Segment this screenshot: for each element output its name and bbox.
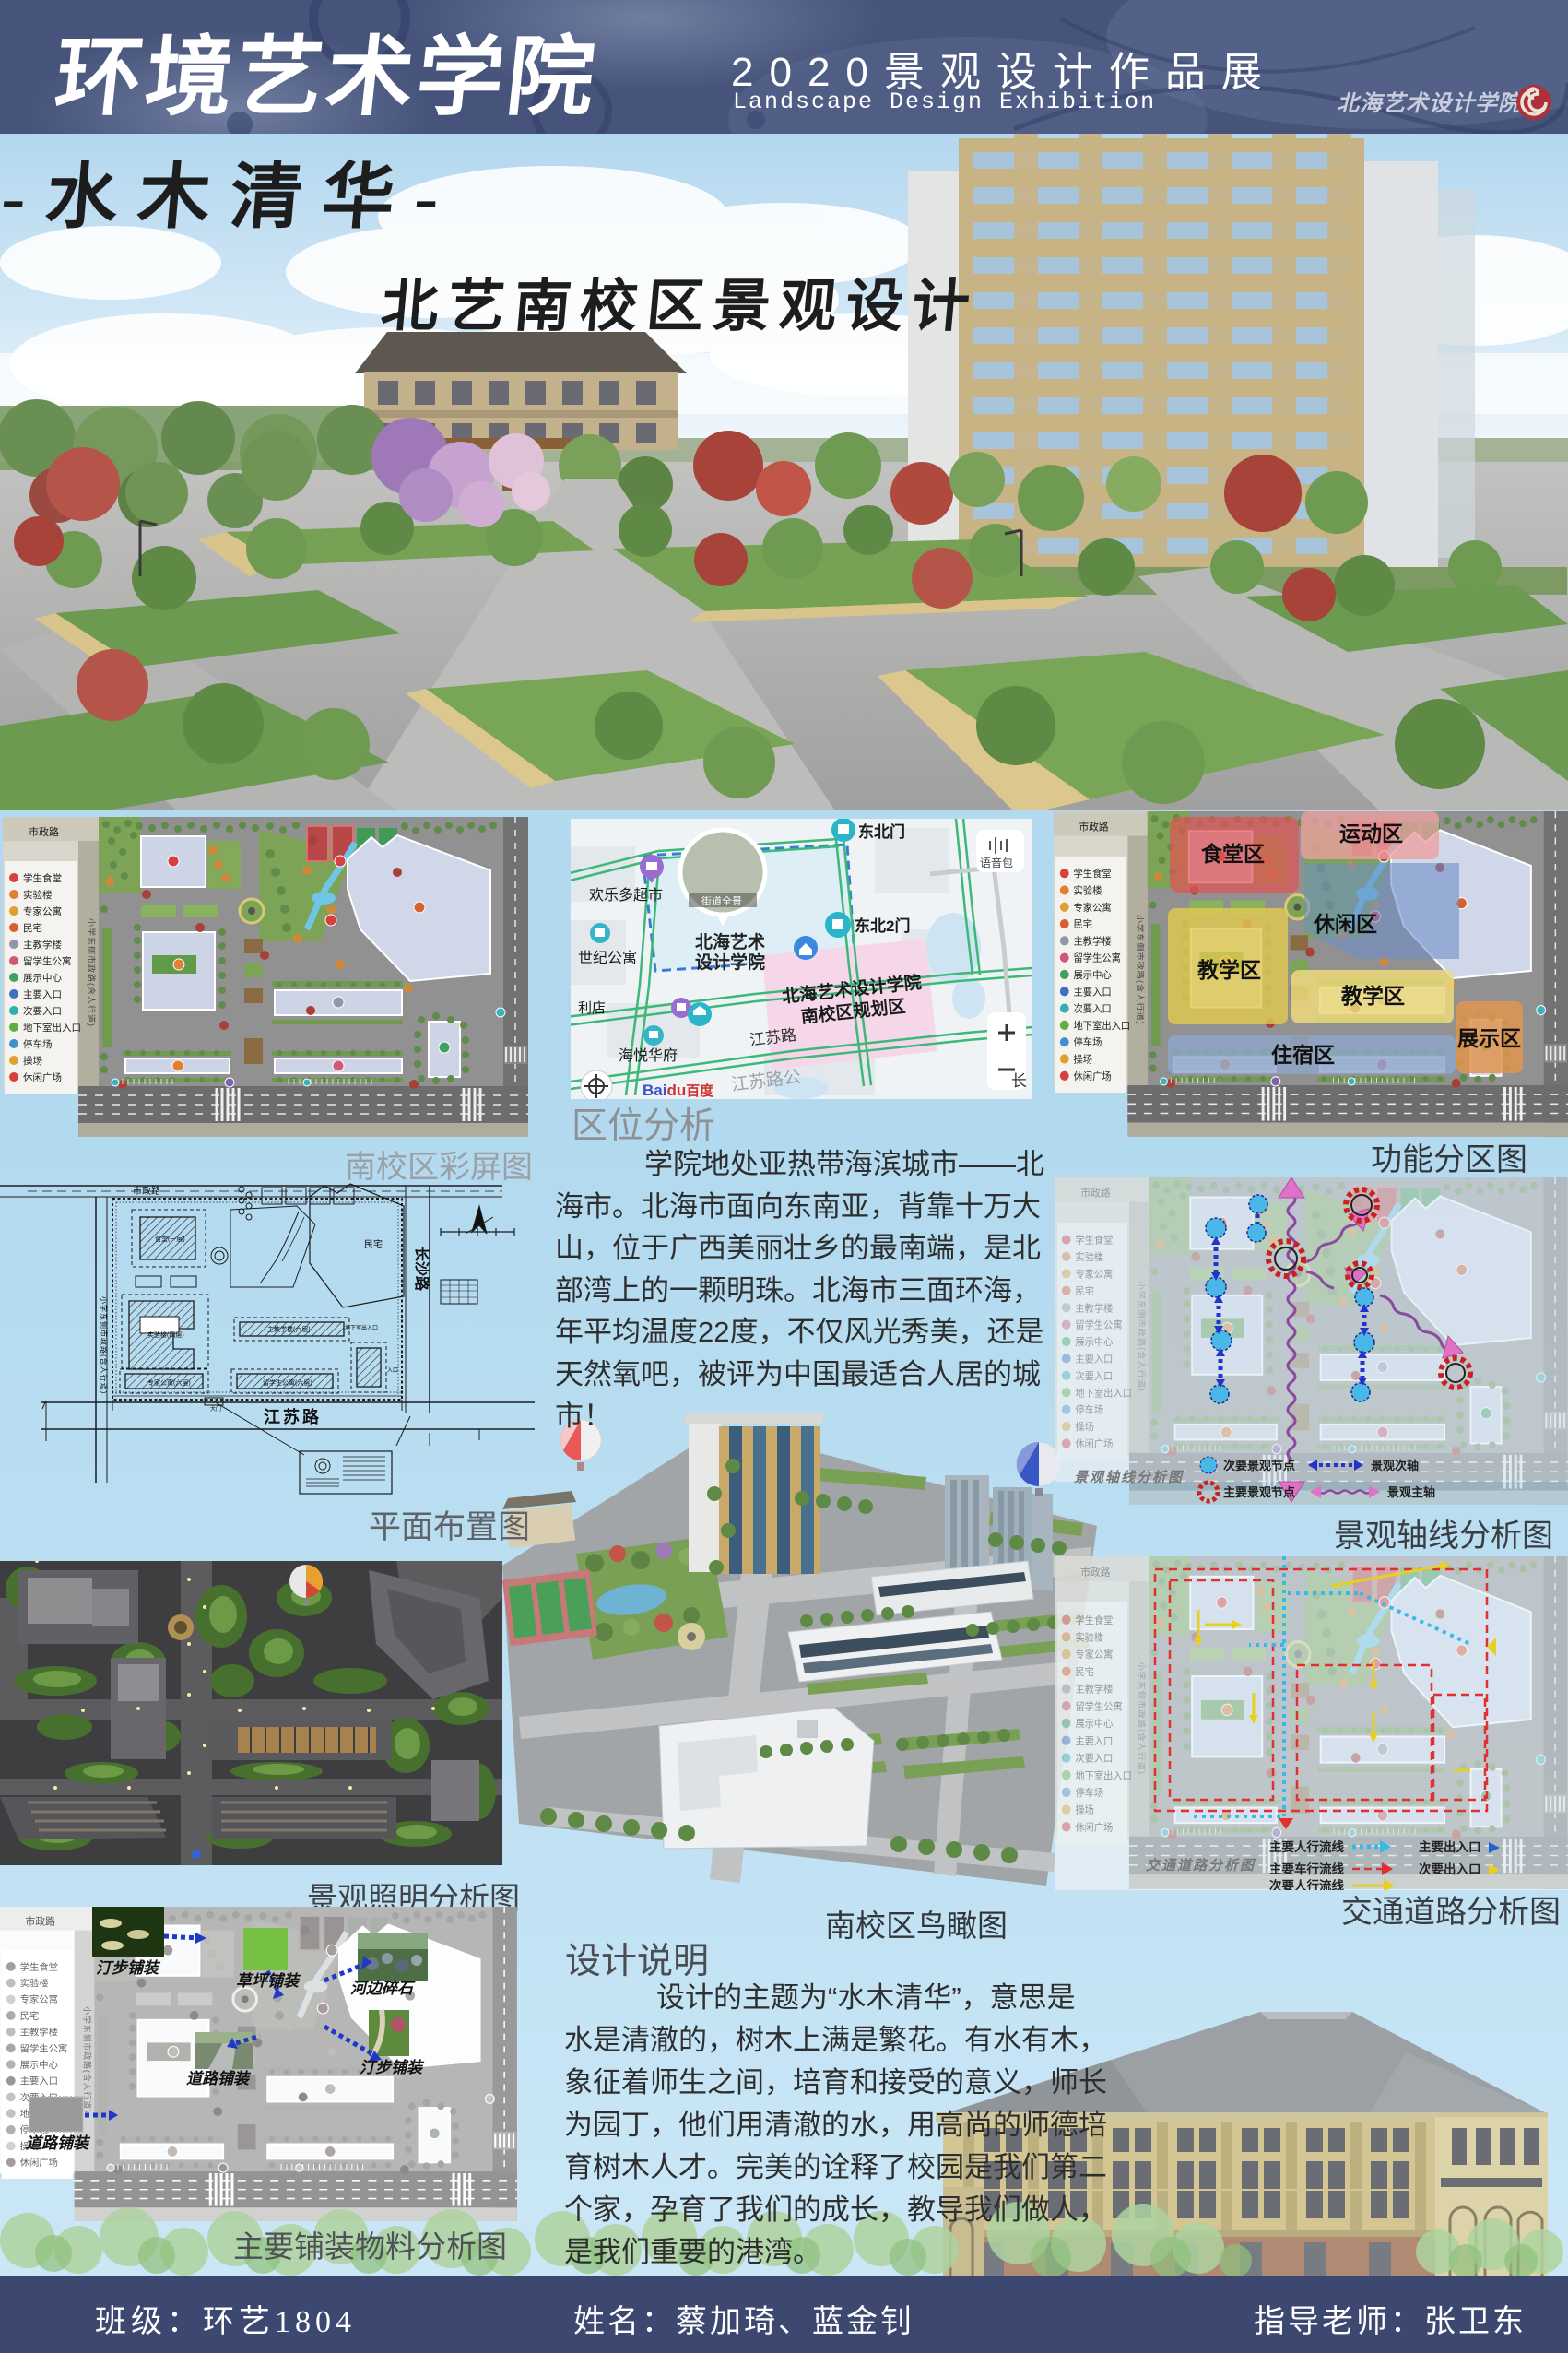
svg-text:入口: 入口 (387, 1367, 398, 1374)
svg-text:河边碎石: 河边碎石 (350, 1980, 416, 1997)
svg-text:运动区: 运动区 (1339, 822, 1403, 845)
svg-text:道路铺装: 道路铺装 (186, 2070, 252, 2087)
svg-text:民宅: 民宅 (23, 922, 42, 934)
svg-text:休闲区: 休闲区 (1313, 912, 1377, 936)
svg-text:海悦华府: 海悦华府 (619, 1047, 678, 1064)
svg-text:-水木清华-: -水木清华- (0, 157, 463, 237)
svg-text:次要景观节点: 次要景观节点 (1223, 1459, 1295, 1472)
svg-text:实验楼(四层): 实验楼(四层) (147, 1330, 184, 1339)
svg-text:次要人行流线: 次要人行流线 (1269, 1878, 1344, 1890)
svg-text:长沙路: 长沙路 (413, 1247, 430, 1292)
svg-text:教学区: 教学区 (1341, 984, 1405, 1008)
svg-text:汀步铺装: 汀步铺装 (96, 1959, 161, 1977)
svg-text:汀步铺装: 汀步铺装 (360, 2059, 425, 2076)
svg-text:长: 长 (1011, 1072, 1027, 1090)
svg-text:大门: 大门 (210, 1405, 221, 1413)
svg-text:小学东侧市政路(含人行道): 小学东侧市政路(含人行道) (100, 1296, 109, 1394)
svg-text:江苏路: 江苏路 (264, 1407, 322, 1426)
svg-text:停车场: 停车场 (23, 1038, 53, 1050)
svg-text:展示区: 展示区 (1457, 1026, 1521, 1050)
svg-text:主要出入口: 主要出入口 (1419, 1839, 1481, 1854)
svg-text:主要景观节点: 主要景观节点 (1223, 1485, 1295, 1499)
svg-text:北海艺术: 北海艺术 (695, 931, 765, 952)
svg-text:留学生公寓(六层): 留学生公寓(六层) (263, 1378, 312, 1387)
svg-text:展示中心: 展示中心 (23, 972, 62, 984)
svg-text:草坪铺装: 草坪铺装 (236, 1972, 301, 1990)
svg-text:小学东侧市政路(含人行道): 小学东侧市政路(含人行道) (87, 918, 97, 1027)
svg-text:实验楼: 实验楼 (23, 889, 53, 901)
svg-text:欢乐多超市: 欢乐多超市 (589, 887, 663, 904)
svg-text:市政路: 市政路 (133, 1185, 160, 1197)
svg-text:教学区: 教学区 (1197, 958, 1261, 982)
svg-text:操场: 操场 (23, 1055, 42, 1067)
svg-text:次要出入口: 次要出入口 (1419, 1862, 1481, 1876)
svg-text:食堂区: 食堂区 (1201, 842, 1265, 866)
svg-text:街道全景: 街道全景 (701, 894, 742, 907)
svg-text:世纪公寓: 世纪公寓 (578, 950, 637, 966)
svg-text:专家公寓(六层): 专家公寓(六层) (147, 1378, 191, 1387)
svg-text:主要人行流线: 主要人行流线 (1269, 1839, 1344, 1854)
svg-text:语音包: 语音包 (980, 856, 1013, 869)
svg-text:利店: 利店 (578, 1000, 606, 1016)
svg-text:学生食堂: 学生食堂 (23, 872, 62, 884)
svg-text:主要入口: 主要入口 (23, 989, 62, 1000)
svg-text:主教学楼: 主教学楼 (23, 939, 62, 951)
svg-text:景观轴线分析图: 景观轴线分析图 (1073, 1470, 1185, 1485)
svg-text:民宅: 民宅 (364, 1238, 383, 1250)
svg-text:住宿区: 住宿区 (1271, 1043, 1335, 1067)
svg-text:主要车行流线: 主要车行流线 (1269, 1862, 1344, 1876)
svg-text:市政路: 市政路 (29, 825, 59, 838)
svg-text:东北2门: 东北2门 (855, 916, 910, 935)
svg-text:食堂(一层): 食堂(一层) (155, 1235, 185, 1243)
svg-text:地下室出入口: 地下室出入口 (23, 1022, 81, 1034)
svg-text:设计学院: 设计学院 (695, 952, 765, 973)
svg-text:专家公寓: 专家公寓 (23, 905, 62, 917)
svg-text:次要入口: 次要入口 (23, 1005, 62, 1017)
svg-text:东北门: 东北门 (858, 822, 905, 841)
svg-text:留学生公寓: 留学生公寓 (23, 955, 72, 967)
svg-text:景观次轴: 景观次轴 (1371, 1459, 1419, 1472)
svg-text:地下室出入口: 地下室出入口 (345, 1324, 378, 1331)
svg-text:景观主轴: 景观主轴 (1387, 1485, 1435, 1499)
svg-text:休闲广场: 休闲广场 (23, 1071, 62, 1083)
svg-text:北艺南校区景观设计: 北艺南校区景观设计 (379, 275, 982, 338)
svg-text:道路铺装: 道路铺装 (26, 2134, 91, 2152)
svg-text:交通道路分析图: 交通道路分析图 (1146, 1857, 1256, 1874)
svg-text:主教学楼(六层): 主教学楼(六层) (267, 1325, 311, 1333)
